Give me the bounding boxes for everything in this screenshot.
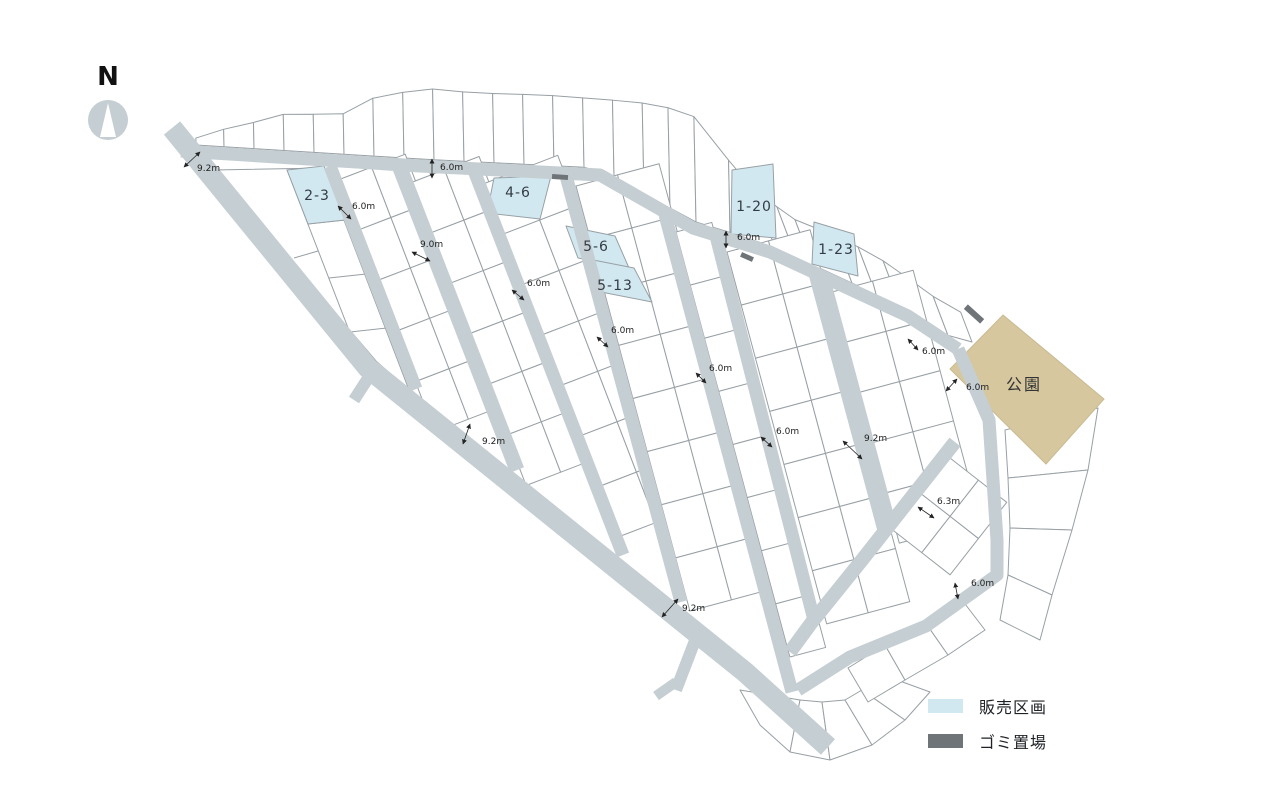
lot-parcel — [224, 122, 254, 148]
sale-lot-swatch — [928, 699, 963, 713]
garbage-swatch — [928, 734, 963, 748]
road — [676, 638, 696, 690]
garbage-legend-label: ゴミ置場 — [979, 729, 1047, 753]
lot-parcel — [343, 98, 374, 156]
road-width-label: 9.2m — [197, 164, 220, 174]
lot-parcel — [583, 98, 614, 176]
north-label: N — [84, 62, 132, 92]
road-width-label: 6.0m — [776, 427, 799, 437]
lot-parcel — [1008, 470, 1088, 530]
road-width-label: 9.2m — [864, 434, 887, 444]
road — [656, 682, 676, 696]
subdivision-map-page: 9.2m6.0m6.0m9.0m6.0m6.0m6.0m6.0m6.0m6.0m… — [0, 0, 1280, 800]
lot-parcel — [463, 92, 494, 163]
sale-lot-label: 1-23 — [818, 242, 854, 258]
lot-parcel — [403, 89, 434, 160]
sale-lot-label: 1-20 — [736, 199, 772, 215]
north-compass: N — [84, 62, 132, 142]
sale-lot-label: 2-3 — [304, 188, 330, 204]
legend-item-garbage: ゴミ置場 — [928, 729, 1047, 753]
subdivision-map: 9.2m6.0m6.0m9.0m6.0m6.0m6.0m6.0m6.0m6.0m… — [0, 0, 1280, 800]
road-width-label: 6.0m — [971, 579, 994, 589]
road-width-label: 6.0m — [611, 326, 634, 336]
lot-parcel — [283, 114, 314, 152]
lot-parcel — [253, 114, 284, 150]
sale-legend-label: 販売区画 — [979, 694, 1047, 718]
road-width-label: 6.0m — [440, 163, 463, 173]
lot-parcel — [493, 94, 524, 165]
sale-lot-label: 5-6 — [583, 239, 609, 255]
road-width-label: 6.0m — [709, 364, 732, 374]
dimension-arrow — [946, 379, 957, 391]
road-width-label: 9.2m — [682, 604, 705, 614]
sale-lot-label: 4-6 — [505, 185, 531, 201]
road — [354, 372, 372, 400]
lot-parcel — [196, 129, 224, 146]
lot-parcel — [694, 117, 730, 233]
legend: 販売区画 ゴミ置場 — [928, 694, 1047, 764]
garbage-site-marker — [964, 304, 984, 323]
lot-parcel — [313, 114, 344, 154]
road-width-label: 9.0m — [420, 240, 443, 250]
lot-parcel — [373, 92, 404, 158]
road-width-label: 6.3m — [937, 497, 960, 507]
north-needle-icon — [100, 103, 116, 137]
road-width-label: 6.0m — [737, 233, 760, 243]
lot-parcel — [433, 89, 464, 161]
road-width-label: 6.0m — [352, 202, 375, 212]
sale-lot-label: 5-13 — [597, 278, 633, 294]
road-width-label: 6.0m — [527, 279, 550, 289]
legend-item-sale: 販売区画 — [928, 694, 1047, 718]
road-width-label: 9.2m — [482, 437, 505, 447]
lot-parcel — [523, 94, 554, 165]
road-width-label: 6.0m — [966, 383, 989, 393]
lot-parcel — [668, 108, 696, 222]
road-width-label: 6.0m — [922, 347, 945, 357]
park-label: 公園 — [1006, 375, 1042, 394]
